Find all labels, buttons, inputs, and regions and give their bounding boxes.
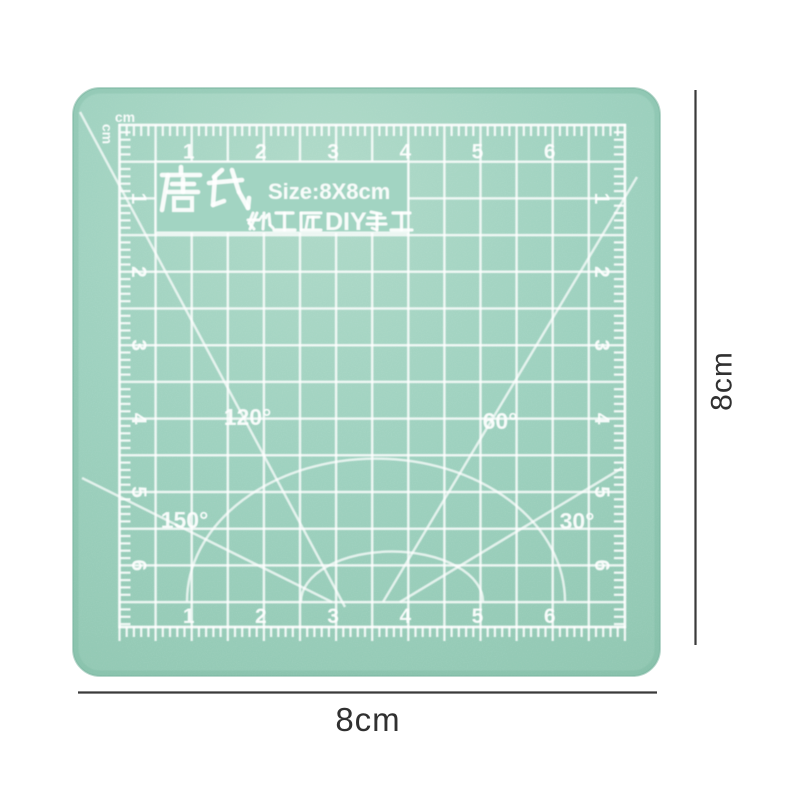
svg-text:2: 2 — [255, 141, 267, 164]
svg-text:1: 1 — [183, 605, 195, 628]
svg-text:DIY: DIY — [325, 208, 367, 236]
svg-text:60°: 60° — [483, 408, 518, 434]
svg-text:Size:8X8cm: Size:8X8cm — [268, 179, 390, 204]
svg-text:4: 4 — [127, 413, 150, 425]
svg-text:2: 2 — [127, 266, 150, 278]
svg-text:3: 3 — [327, 605, 339, 628]
svg-text:4: 4 — [399, 141, 411, 164]
svg-text:5: 5 — [472, 141, 484, 164]
svg-text:1: 1 — [183, 141, 195, 164]
svg-text:2: 2 — [590, 266, 613, 278]
svg-text:5: 5 — [127, 486, 150, 498]
svg-text:1: 1 — [590, 193, 613, 205]
svg-text:8cm: 8cm — [335, 701, 400, 738]
svg-text:5: 5 — [590, 486, 613, 498]
svg-text:cm: cm — [100, 124, 116, 144]
svg-text:6: 6 — [544, 141, 556, 164]
svg-text:4: 4 — [399, 605, 411, 628]
svg-text:6: 6 — [544, 605, 556, 628]
svg-text:2: 2 — [255, 605, 267, 628]
svg-text:3: 3 — [127, 339, 150, 351]
svg-text:150°: 150° — [161, 507, 209, 533]
svg-text:8cm: 8cm — [706, 351, 739, 411]
svg-text:cm: cm — [115, 109, 135, 125]
svg-text:6: 6 — [127, 560, 150, 572]
svg-text:120°: 120° — [224, 404, 272, 430]
svg-text:30°: 30° — [560, 508, 595, 534]
svg-text:4: 4 — [590, 413, 613, 425]
svg-text:6: 6 — [590, 560, 613, 572]
svg-text:3: 3 — [590, 339, 613, 351]
svg-text:1: 1 — [127, 193, 150, 205]
svg-text:3: 3 — [327, 141, 339, 164]
svg-text:5: 5 — [472, 605, 484, 628]
